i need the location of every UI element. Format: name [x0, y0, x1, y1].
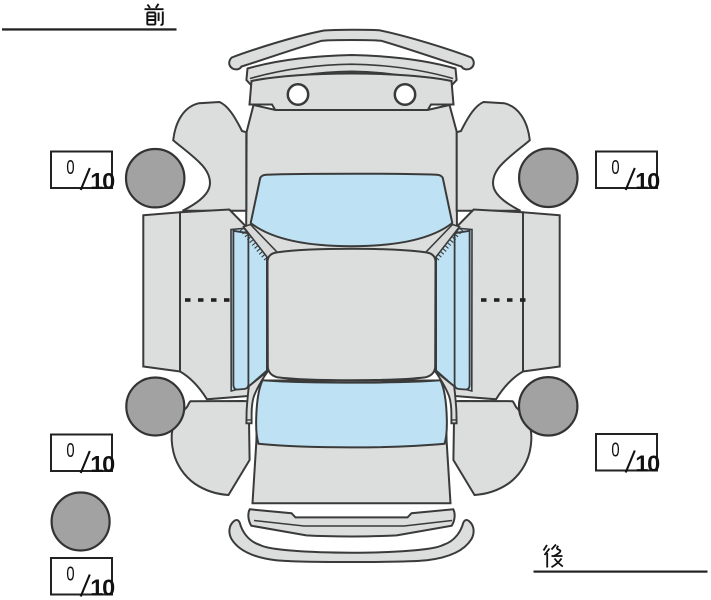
svg-text:0: 0 — [611, 157, 619, 179]
svg-text:10: 10 — [635, 451, 660, 477]
svg-text:0: 0 — [66, 440, 74, 462]
svg-text:0: 0 — [66, 564, 74, 586]
svg-text:0: 0 — [611, 440, 619, 462]
svg-text:10: 10 — [90, 168, 115, 194]
svg-text:10: 10 — [90, 451, 115, 477]
svg-text:10: 10 — [635, 168, 660, 194]
svg-text:0: 0 — [66, 157, 74, 179]
svg-text:10: 10 — [90, 575, 115, 600]
